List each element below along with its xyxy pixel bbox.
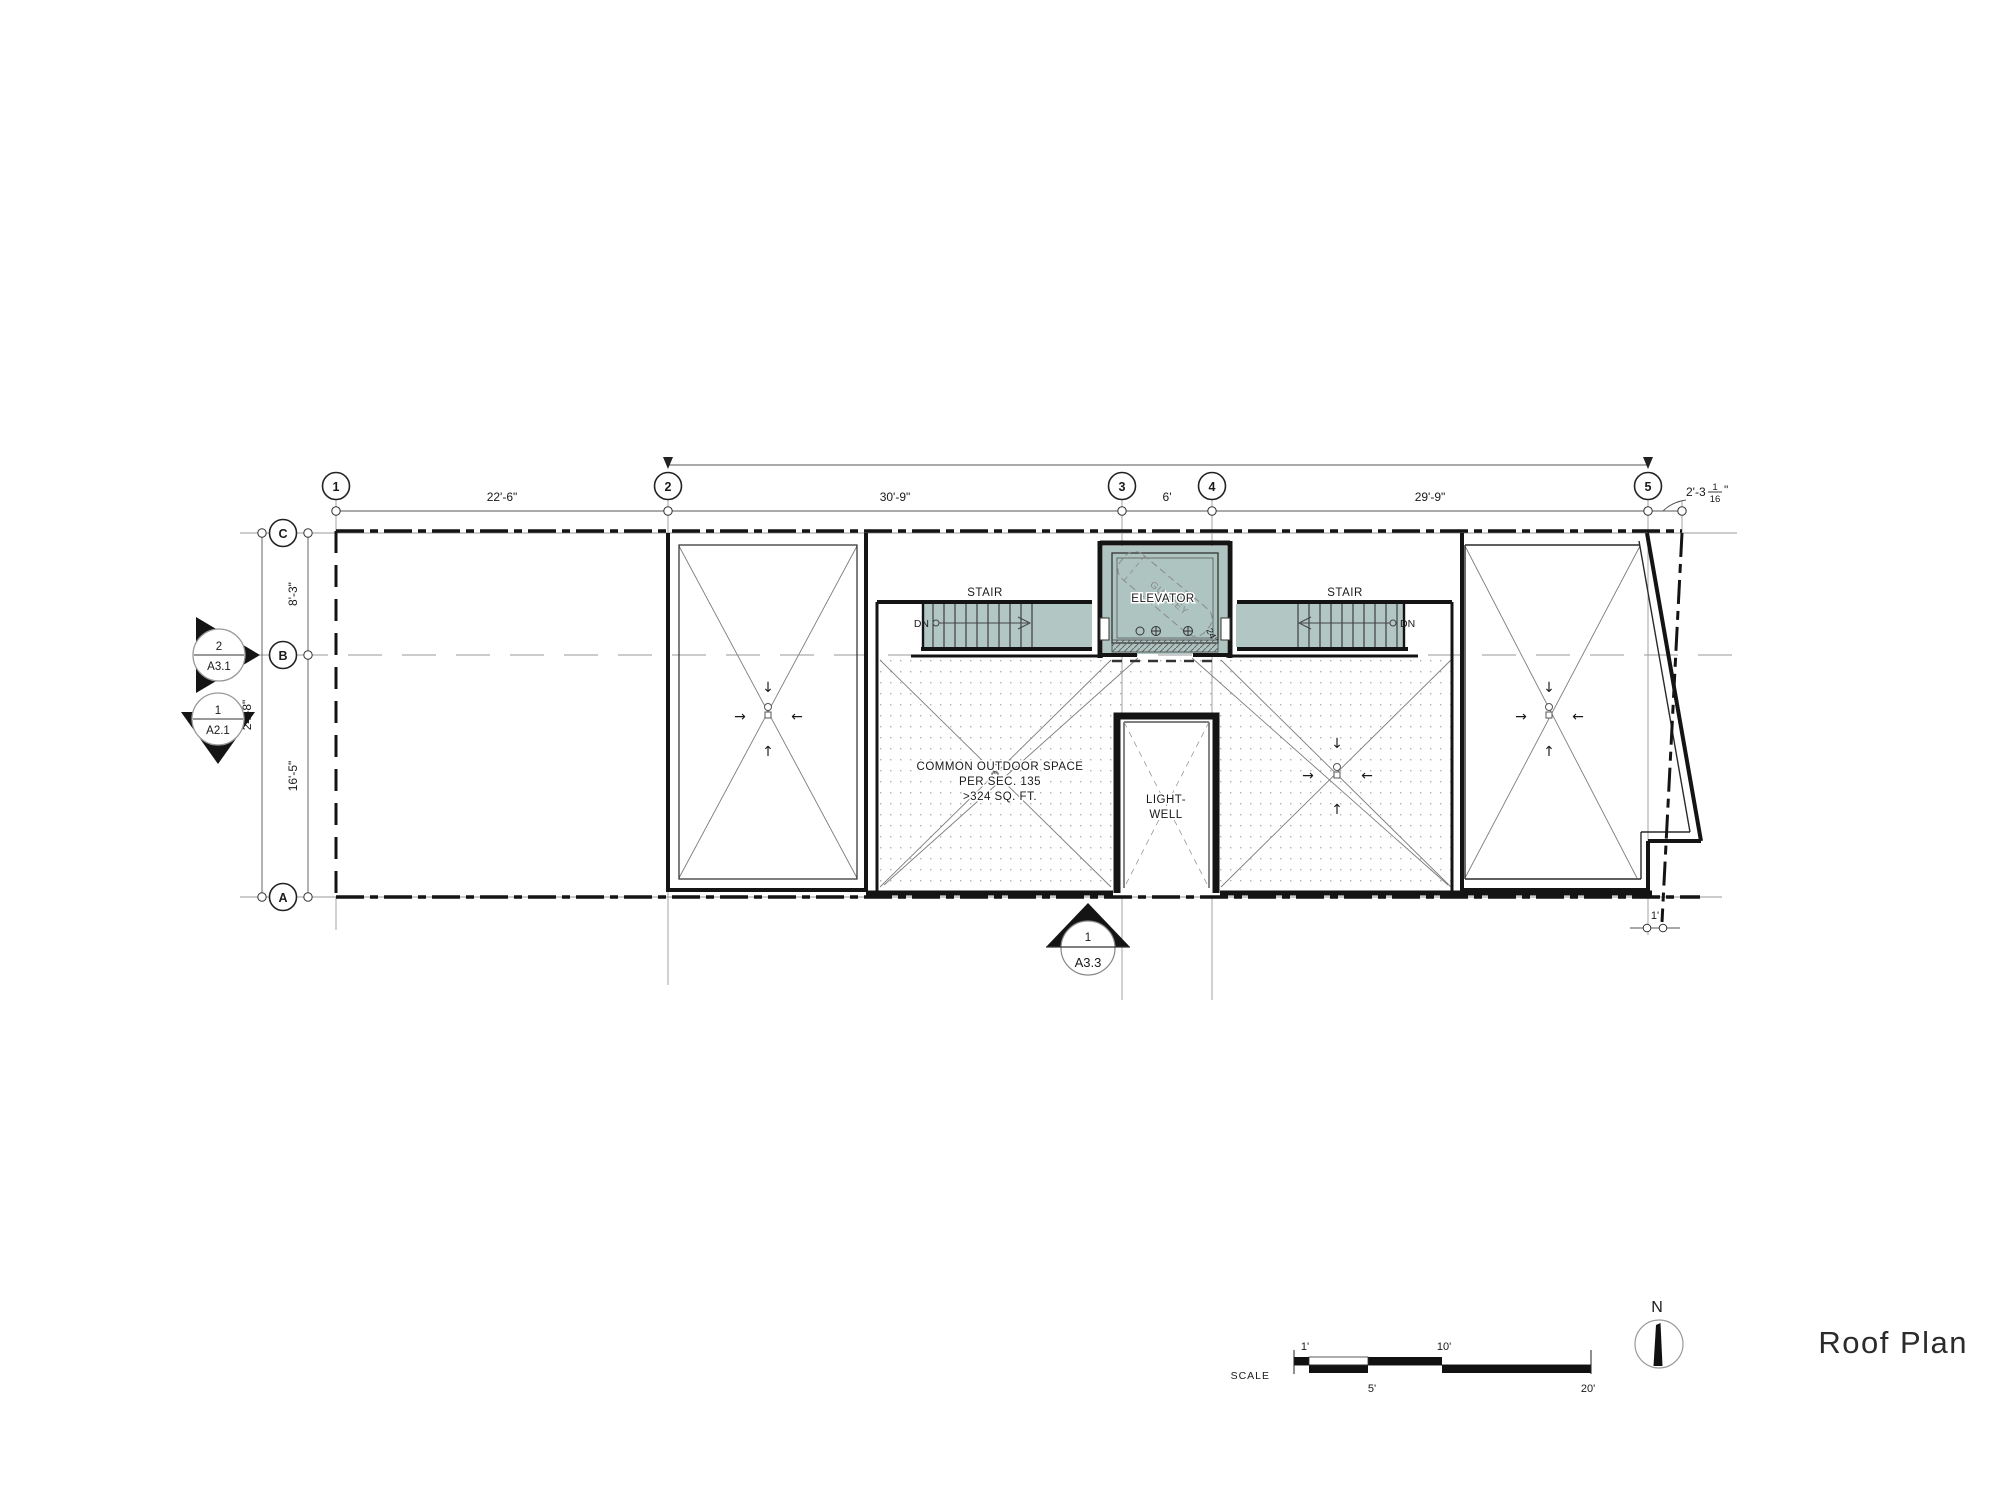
- marker-a21-sheet: A2.1: [206, 725, 230, 737]
- north-label: N: [1651, 1299, 1663, 1316]
- stair-right-label: STAIR: [1327, 587, 1363, 599]
- marker-a31-number: 2: [216, 641, 222, 653]
- dim-30-9: 30'-9": [880, 490, 911, 504]
- elevator-label: ELEVATOR: [1131, 593, 1194, 605]
- svg-text:↑: ↑: [1331, 802, 1343, 818]
- grid-col-3: 3: [1119, 480, 1126, 494]
- svg-text:→: →: [1302, 768, 1314, 784]
- svg-text:WELL: WELL: [1149, 809, 1182, 821]
- svg-text:2'-3: 2'-3: [1686, 485, 1706, 499]
- svg-text:←: ←: [1361, 768, 1373, 784]
- page-title: Roof Plan: [1818, 1325, 1968, 1360]
- marker-a21-number: 1: [215, 705, 221, 717]
- dim-22-6: 22'-6": [487, 490, 518, 504]
- stair-left-label: STAIR: [967, 587, 1003, 599]
- grid-col-2: 2: [665, 480, 672, 494]
- dim-29-9: 29'-9": [1415, 490, 1446, 504]
- svg-text:↓: ↓: [762, 680, 774, 696]
- svg-text:LIGHT-: LIGHT-: [1146, 794, 1186, 806]
- dn-left-label: DN: [914, 618, 929, 630]
- grid-row-b: B: [278, 649, 287, 663]
- scale-tick-5: 5': [1368, 1383, 1376, 1395]
- grid-row-a: A: [278, 891, 287, 905]
- svg-text:PER SEC. 135: PER SEC. 135: [959, 776, 1041, 788]
- drain-right-block: ↓ ↑ → ←: [1515, 680, 1584, 760]
- section-marker-a31: 2 A3.1: [193, 617, 260, 693]
- stair-left: [877, 602, 1103, 656]
- svg-text:COMMON OUTDOOR SPACE: COMMON OUTDOOR SPACE: [917, 761, 1084, 773]
- dim-1ft: 1': [1651, 910, 1659, 922]
- drain-left-block: ↓ ↑ → ←: [734, 680, 803, 760]
- grid-col-5: 5: [1645, 480, 1652, 494]
- marker-a31-sheet: A3.1: [207, 661, 231, 673]
- scale-tick-20: 20': [1581, 1383, 1595, 1395]
- grid-col-1: 1: [333, 480, 340, 494]
- roof-plan-sheet: GURNEY 24" ↓ ↑ →: [0, 0, 2000, 1500]
- scale-bar: SCALE 1' 10' 5' 20': [1231, 1341, 1596, 1395]
- grid-row-c: C: [278, 527, 287, 541]
- dim-16-5: 16'-5": [286, 761, 300, 792]
- dim-8-3: 8'-3": [286, 582, 300, 606]
- svg-text:1: 1: [1712, 482, 1717, 493]
- svg-text:←: ←: [791, 709, 803, 725]
- bottom-right-dim: 1': [1630, 910, 1680, 932]
- svg-text:→: →: [734, 709, 746, 725]
- svg-text:↓: ↓: [1331, 736, 1343, 752]
- stair-right: [1226, 602, 1452, 656]
- scale-tick-10: 10': [1437, 1341, 1451, 1353]
- north-arrow-icon: N: [1635, 1299, 1683, 1368]
- top-dimensions: 22'-6" 30'-9" 6' 29'-9" 2'-3 1 16 ": [332, 457, 1728, 515]
- svg-text:>324 SQ. FT.: >324 SQ. FT.: [963, 791, 1037, 803]
- scale-tick-1: 1': [1301, 1341, 1309, 1353]
- svg-text:16: 16: [1710, 494, 1721, 505]
- roof-plan-drawing: GURNEY 24" ↓ ↑ →: [0, 0, 2000, 1500]
- marker-a33-number: 1: [1085, 932, 1091, 944]
- dim-6: 6': [1163, 490, 1172, 504]
- svg-text:↑: ↑: [1543, 744, 1555, 760]
- scale-label: SCALE: [1231, 1370, 1270, 1382]
- svg-text:↑: ↑: [762, 744, 774, 760]
- svg-text:": ": [1724, 483, 1728, 497]
- grid-col-4: 4: [1209, 480, 1216, 494]
- section-marker-a33: 1 A3.3: [1046, 903, 1130, 975]
- svg-text:→: →: [1515, 709, 1527, 725]
- dn-right-label: DN: [1400, 618, 1415, 630]
- light-well: [1117, 716, 1216, 896]
- grid-bubbles-top: 1 2 3 4 5: [323, 473, 1662, 500]
- svg-text:←: ←: [1572, 709, 1584, 725]
- svg-text:↓: ↓: [1543, 680, 1555, 696]
- marker-a33-sheet: A3.3: [1075, 955, 1102, 970]
- dim-2-3-1-16: 2'-3 1 16 ": [1663, 482, 1728, 511]
